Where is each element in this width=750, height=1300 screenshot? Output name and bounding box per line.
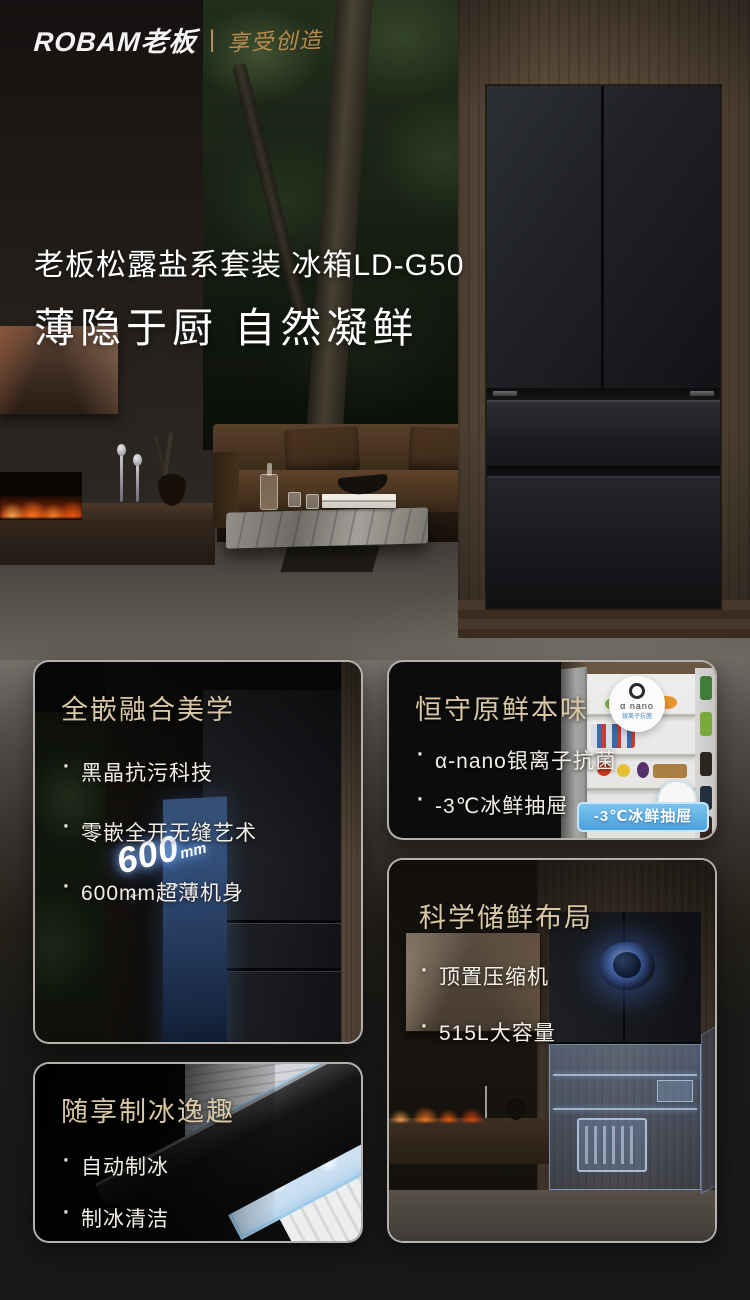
card3-bullet: 515L大容量	[419, 1017, 593, 1047]
brand-slogan: 享受创造	[227, 22, 324, 57]
card3-bullet-list: 顶置压缩机 515L大容量	[419, 961, 593, 1047]
xray-shelf	[553, 1074, 697, 1076]
tree-trunk	[305, 0, 374, 461]
card4-text: 随享制冰逸趣 自动制冰 制冰清洁	[61, 1090, 235, 1233]
card2-bullet: -3℃冰鲜抽屉	[415, 790, 617, 820]
card1-bullet: 零嵌全开无缝艺术	[61, 817, 257, 847]
fireplace	[0, 472, 82, 520]
card2-title: 恒守原鲜本味	[415, 688, 617, 727]
card2-bullet-list: α-nano银离子抗菌 -3℃冰鲜抽屉 高保湿养鲜	[415, 745, 617, 840]
book-stack	[322, 494, 396, 508]
brand-header: ROBAM老板 | 享受创造	[34, 20, 323, 59]
wood-basket	[653, 764, 687, 778]
card4-bullet: 制冰清洁	[61, 1203, 235, 1233]
candlestick	[136, 462, 139, 502]
card3-fireplace-flames	[389, 1088, 485, 1122]
table-base	[280, 546, 379, 572]
fridge-hinge-bar	[487, 388, 720, 400]
card3-vase	[507, 1098, 525, 1120]
fridge-hinge	[493, 391, 517, 396]
coffee-table	[226, 498, 428, 574]
marble-tabletop	[226, 507, 428, 548]
card3-floor	[389, 1190, 717, 1243]
feature-card-fresh-flavor: α nano 银离子抗菌 -3℃冰鲜抽屉 恒守原鲜本味 α-nano银离子抗菌 …	[387, 660, 717, 840]
logo-divider: |	[209, 26, 215, 54]
card3-candlestick	[485, 1086, 487, 1118]
hero-scene: 老板松露盐系套装 冰箱LD-G50 薄隐于厨 自然凝鲜	[0, 0, 750, 660]
card3-bullet: 顶置压缩机	[419, 961, 593, 991]
card1-bullet: 黑晶抗污科技	[61, 757, 257, 787]
hero-title: 老板松露盐系套装 冰箱LD-G50 薄隐于厨 自然凝鲜	[34, 240, 464, 354]
bottle	[700, 752, 712, 776]
bottle	[700, 676, 712, 700]
drinking-glass	[306, 494, 319, 509]
nano-logo-icon	[629, 683, 645, 699]
drinking-glass	[288, 492, 301, 507]
forest-window	[203, 0, 485, 450]
xray-side-panel	[701, 1025, 717, 1194]
hero-title-line2: 薄隐于厨 自然凝鲜	[34, 294, 464, 354]
xray-drawer-basket	[577, 1118, 647, 1172]
eggplant	[637, 762, 649, 778]
xray-box	[657, 1080, 693, 1102]
crystal-decanter	[260, 474, 278, 510]
card2-bullet: α-nano银离子抗菌	[415, 745, 617, 775]
alpha-nano-badge: α nano 银离子抗菌	[609, 676, 665, 732]
fridge-bottom-drawer	[487, 476, 720, 608]
feature-card-ice-making: 随享制冰逸趣 自动制冰 制冰清洁	[33, 1062, 363, 1243]
fridge-hinge	[690, 391, 714, 396]
xray-shelf	[553, 1108, 697, 1110]
fridge-door-seam	[601, 86, 604, 388]
nano-badge-text: α nano	[609, 701, 665, 711]
card2-bullet: 高保湿养鲜	[415, 835, 617, 840]
card4-bullet: 自动制冰	[61, 1151, 235, 1181]
feature-cards-section: 600mm ← → 全嵌融合美学 黑晶抗污科技 零嵌全开无缝艺术 600mm超薄…	[0, 660, 750, 1300]
card3-title: 科学储鲜布局	[419, 896, 593, 935]
candlestick	[120, 452, 123, 502]
card1-text: 全嵌融合美学 黑晶抗污科技 零嵌全开无缝艺术 600mm超薄机身	[61, 688, 257, 907]
product-page: ROBAM老板 | 享受创造	[0, 0, 750, 1300]
nano-badge-subtext: 银离子抗菌	[609, 711, 665, 720]
fridge-middle-drawer	[487, 400, 720, 466]
card2-text: 恒守原鲜本味 α-nano银离子抗菌 -3℃冰鲜抽屉 高保湿养鲜	[415, 688, 617, 840]
card4-title: 随享制冰逸趣	[61, 1090, 235, 1129]
card1-title: 全嵌融合美学	[61, 688, 257, 727]
card4-bullet-list: 自动制冰 制冰清洁	[61, 1151, 235, 1233]
bottle	[700, 712, 712, 736]
card1-bullet: 600mm超薄机身	[61, 877, 257, 907]
card1-bullet-list: 黑晶抗污科技 零嵌全开无缝艺术 600mm超薄机身	[61, 757, 257, 907]
refrigerator	[487, 86, 720, 608]
yellow-pepper	[617, 764, 630, 777]
robam-logo: ROBAM老板	[33, 20, 199, 59]
feature-card-storage-layout: 科学储鲜布局 顶置压缩机 515L大容量	[387, 858, 717, 1243]
card3-console	[389, 1118, 549, 1164]
card3-text: 科学储鲜布局 顶置压缩机 515L大容量	[419, 896, 593, 1047]
feature-card-fusion-aesthetics: 600mm ← → 全嵌融合美学 黑晶抗污科技 零嵌全开无缝艺术 600mm超薄…	[33, 660, 363, 1044]
fridge-drawer-gap	[487, 466, 720, 476]
hero-title-line1: 老板松露盐系套装 冰箱LD-G50	[34, 240, 464, 284]
fireplace-flames	[0, 488, 82, 518]
sofa-cushion	[284, 426, 360, 474]
